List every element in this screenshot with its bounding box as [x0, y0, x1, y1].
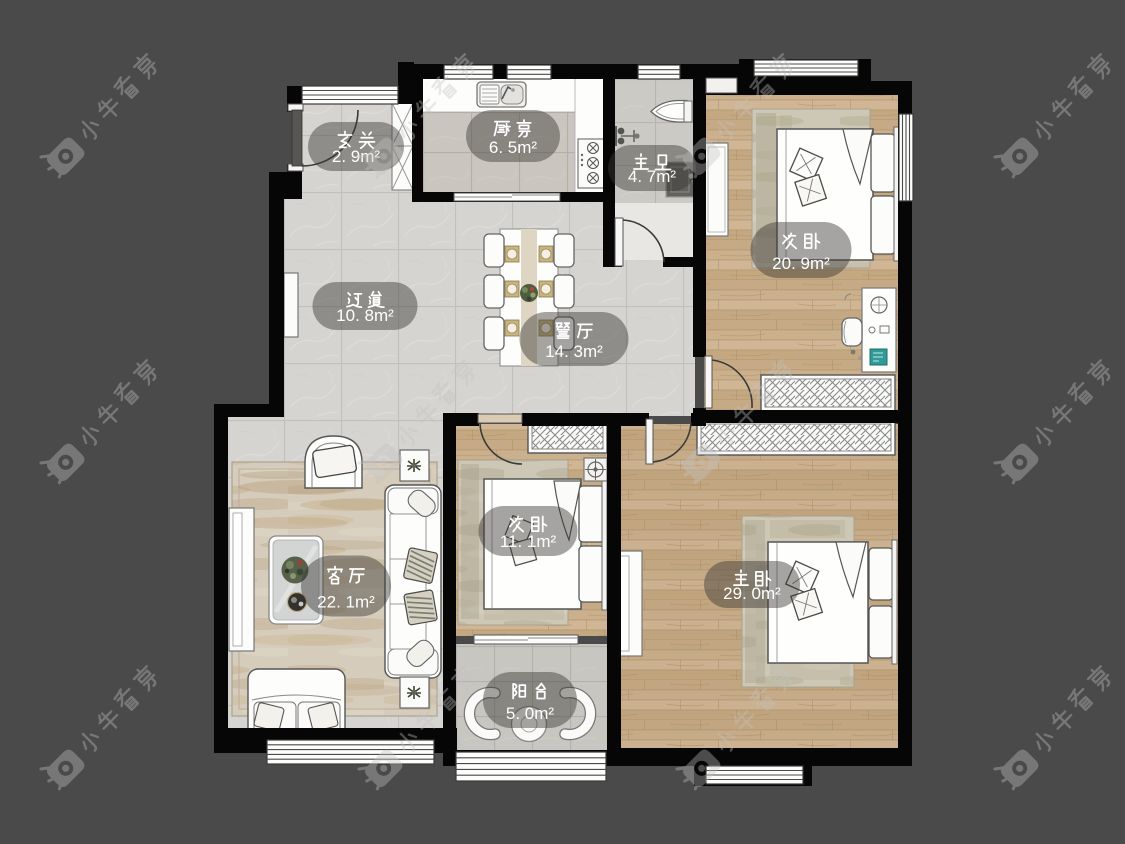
svg-text:11. 1m²: 11. 1m² — [500, 532, 557, 551]
svg-text:29. 0m²: 29. 0m² — [723, 584, 781, 603]
svg-text:4. 7m²: 4. 7m² — [628, 167, 677, 186]
svg-text:6. 5m²: 6. 5m² — [489, 138, 538, 157]
svg-text:5. 0m²: 5. 0m² — [506, 704, 555, 723]
svg-text:22. 1m²: 22. 1m² — [317, 593, 375, 612]
svg-text:20. 9m²: 20. 9m² — [772, 254, 830, 273]
svg-text:14. 3m²: 14. 3m² — [545, 342, 603, 361]
svg-text:10. 8m²: 10. 8m² — [336, 306, 394, 325]
